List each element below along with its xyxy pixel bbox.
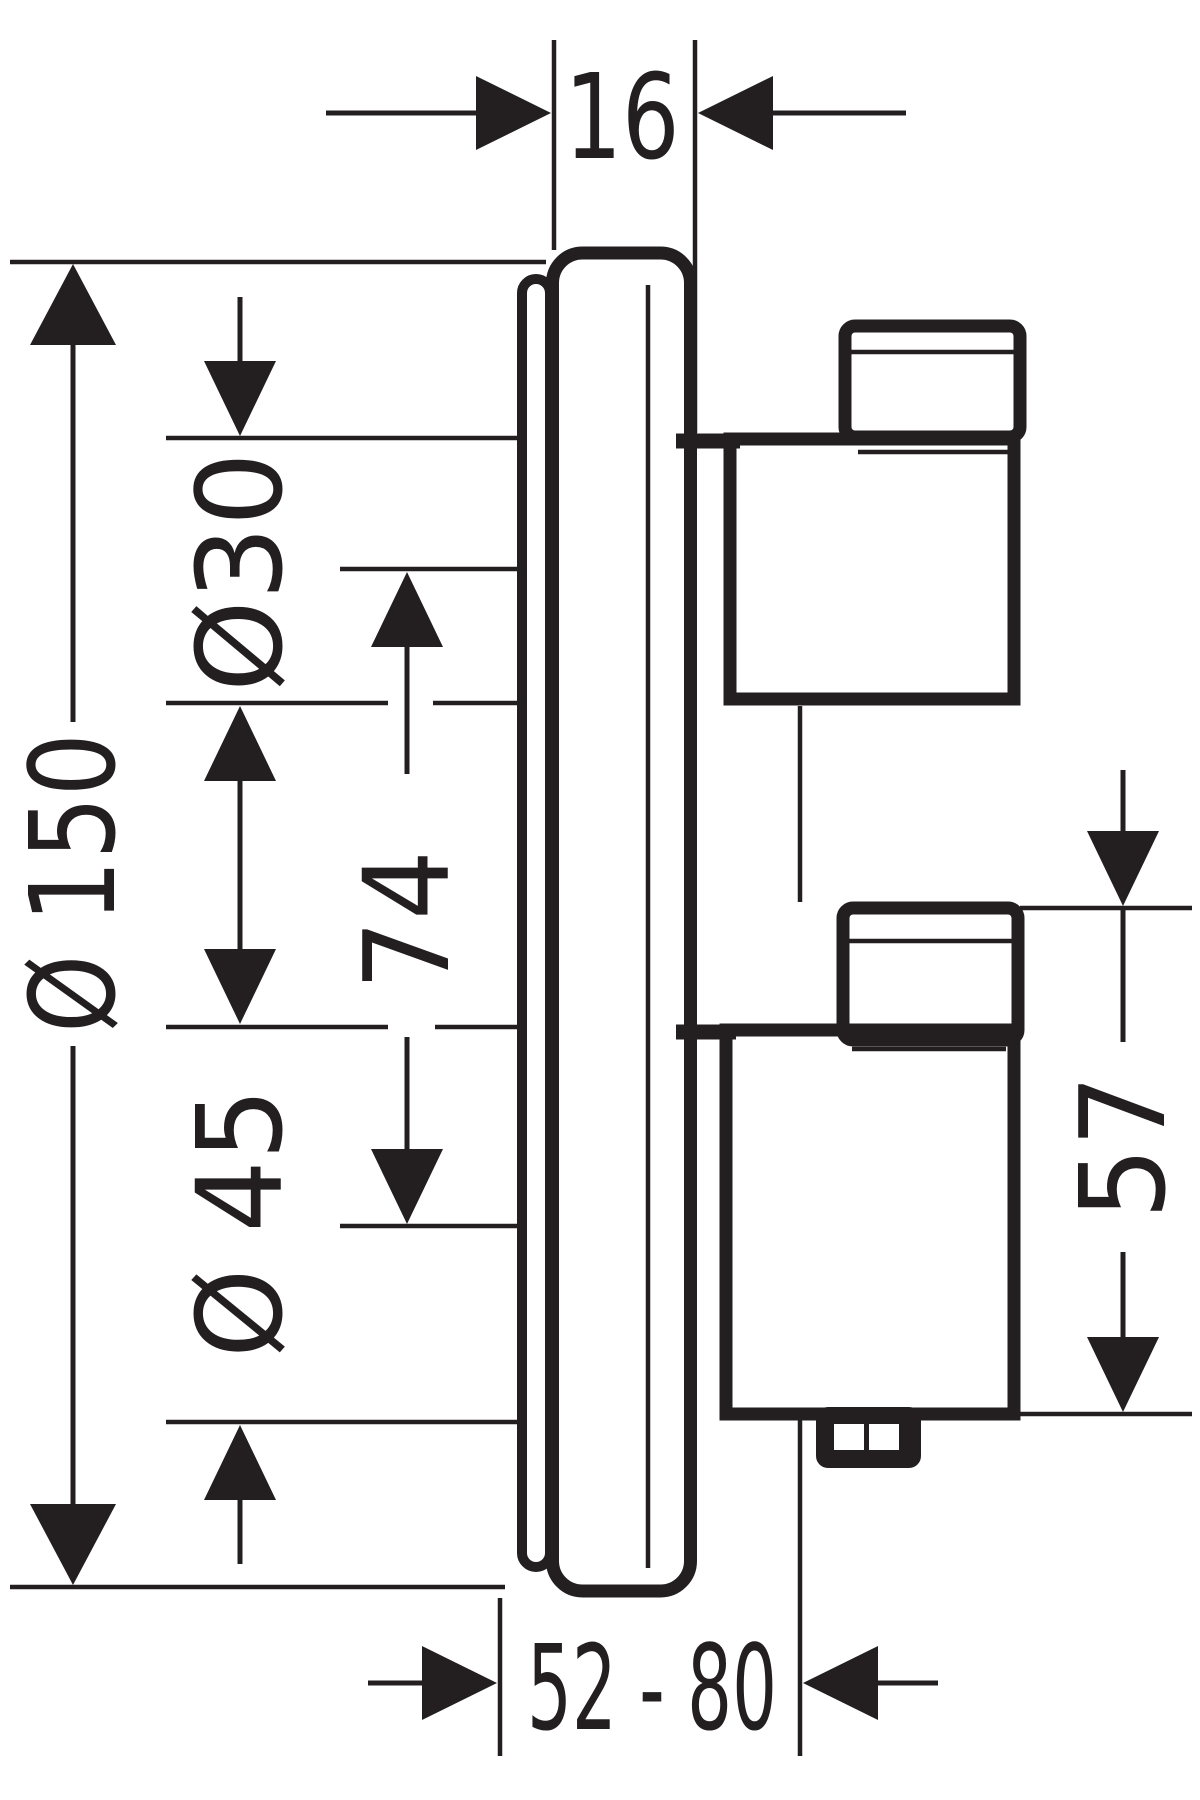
arrowhead-down-icon: [1087, 831, 1159, 906]
arrowhead-down-icon: [204, 949, 276, 1024]
escutcheon-plate: [522, 253, 691, 1591]
arrowhead-left-icon: [803, 1646, 878, 1720]
arrowhead-right-icon: [422, 1646, 497, 1720]
dim-label-installation-depth: 52 - 80: [527, 1619, 777, 1757]
lower-handle-body: [726, 1030, 1014, 1414]
upper-handle-body: [730, 439, 1014, 699]
dim-label-lower-escutcheon-diameter: Ø 45: [171, 1088, 309, 1358]
arrowhead-up-icon: [30, 264, 116, 345]
arrowhead-down-icon: [30, 1504, 116, 1585]
dim-label-plate-thickness: 16: [565, 48, 680, 186]
dim-lower-handle-height: 57: [1014, 770, 1192, 1414]
arrowhead-up-icon: [371, 572, 443, 647]
arrowhead-up-icon: [204, 1425, 276, 1500]
plate-outline: [553, 253, 691, 1591]
lower-handle-grip: [843, 908, 1018, 1040]
dim-label-plate-diameter: Ø 150: [4, 733, 142, 1033]
dim-label-handle-center-distance: 74: [338, 850, 476, 990]
technical-drawing: Ø 150 Ø30 74 Ø 45 1: [0, 0, 1200, 1800]
dim-label-upper-escutcheon-diameter: Ø30: [171, 452, 309, 692]
dim-label-lower-handle-height: 57: [1054, 1075, 1192, 1220]
dim-plate-thickness: 16: [326, 40, 906, 433]
upper-handle-grip: [845, 326, 1020, 437]
arrowhead-down-icon: [371, 1149, 443, 1224]
technical-drawing-page: Ø 150 Ø30 74 Ø 45 1: [0, 0, 1200, 1800]
upper-handle: [676, 326, 1020, 699]
dim-lower-escutcheon-diameter: Ø 45: [166, 1037, 520, 1564]
lower-handle: [676, 908, 1018, 1468]
tab-window: [834, 1424, 864, 1450]
arrowhead-right-icon: [476, 76, 551, 150]
arrowhead-up-icon: [204, 706, 276, 781]
arrowhead-down-icon: [1087, 1337, 1159, 1412]
tab-window: [869, 1424, 899, 1450]
wall-seal-ring: [522, 279, 550, 1567]
tab-outline: [816, 1407, 921, 1468]
dim-handle-center-distance: 74: [166, 703, 520, 1027]
arrowhead-left-icon: [698, 76, 773, 150]
safety-stop-tab: [816, 1407, 921, 1468]
arrowhead-down-icon: [204, 361, 276, 436]
